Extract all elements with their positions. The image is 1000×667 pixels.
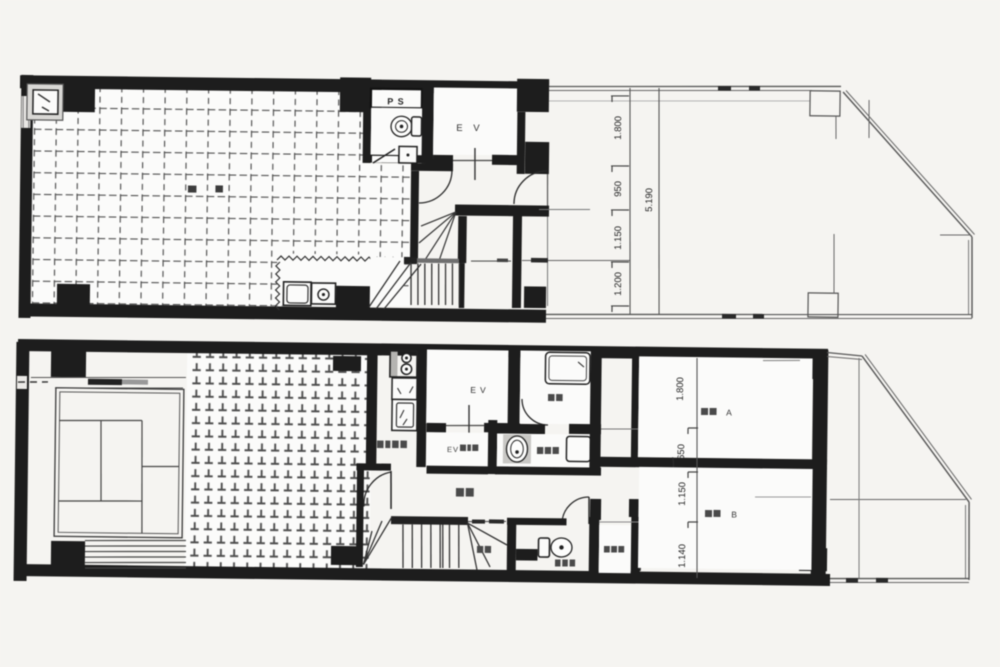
svg-text:1.150: 1.150 bbox=[677, 482, 688, 506]
svg-text:650: 650 bbox=[676, 444, 687, 460]
svg-text:E V: E V bbox=[456, 123, 483, 134]
svg-text:950: 950 bbox=[613, 181, 624, 197]
svg-text:5.190: 5.190 bbox=[644, 188, 655, 212]
svg-text:A: A bbox=[726, 407, 732, 417]
svg-text:1.140: 1.140 bbox=[677, 544, 688, 568]
svg-text:B: B bbox=[731, 509, 737, 519]
svg-text:1.200: 1.200 bbox=[613, 272, 624, 296]
svg-text:1.150: 1.150 bbox=[613, 226, 624, 250]
svg-text:EV: EV bbox=[470, 385, 489, 395]
svg-text:1.800: 1.800 bbox=[675, 377, 686, 401]
svg-text:P S: P S bbox=[387, 96, 404, 106]
svg-text:1.800: 1.800 bbox=[613, 116, 624, 140]
svg-text:EV: EV bbox=[447, 445, 459, 454]
